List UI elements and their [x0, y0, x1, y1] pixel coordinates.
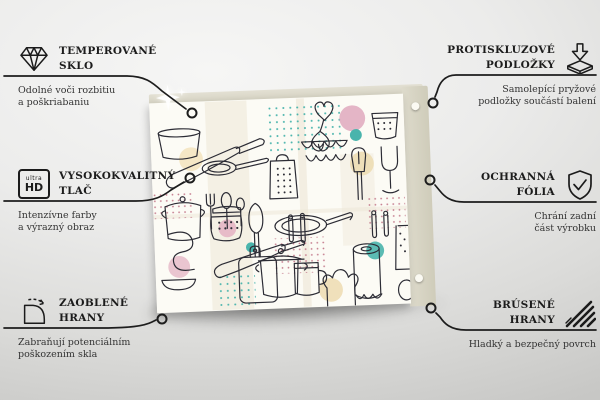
feature-hq-print: ultraHD VYSOKOKVALITNÝ TLAČ Intenzívne f… — [18, 167, 168, 234]
feature-head: PROTISKLUZOVÉ PODLOŽKY — [424, 41, 596, 75]
feature-head: ZAOBLENÉ HRANY — [18, 294, 168, 328]
feature-title: OCHRANNÁ FÓLIA — [481, 170, 555, 200]
feature-description: Zabraňují potenciálním poškozením skla — [18, 337, 168, 361]
product-infographic: TEMPEROVANÉ SKLO Odolné voči rozbitiu a … — [0, 0, 600, 400]
feature-description: Intenzívne farby a výrazný obraz — [18, 210, 168, 234]
feature-ground-edges: BRÚSENÉ HRANY Hladký a bezpečný povrch — [424, 296, 596, 351]
feature-title: VYSOKOKVALITNÝ TLAČ — [59, 169, 175, 199]
anti-slip-pad-icon — [564, 42, 596, 74]
feature-head: BRÚSENÉ HRANY — [424, 296, 596, 330]
feature-anti-slip-pads: PROTISKLUZOVÉ PODLOŽKY Samolepící pryžov… — [424, 41, 596, 108]
shield-check-icon — [564, 169, 596, 201]
feature-title: BRÚSENÉ HRANY — [493, 298, 555, 328]
ultra-hd-icon: ultraHD — [18, 168, 50, 200]
diamond-icon — [18, 43, 50, 75]
feature-protective-foil: OCHRANNÁ FÓLIA Chrání zadní část výrobku — [424, 168, 596, 235]
feature-head: TEMPEROVANÉ SKLO — [18, 42, 168, 76]
feature-description: Hladký a bezpečný povrch — [424, 339, 596, 351]
feature-description: Chrání zadní část výrobku — [424, 211, 596, 235]
feature-head: OCHRANNÁ FÓLIA — [424, 168, 596, 202]
feature-description: Odolné voči rozbitiu a poškriabaniu — [18, 85, 168, 109]
anti-slip-pad-bottom — [415, 274, 423, 282]
ground-edge-icon — [564, 297, 596, 329]
feature-tempered-glass: TEMPEROVANÉ SKLO Odolné voči rozbitiu a … — [18, 42, 168, 109]
feature-title: ZAOBLENÉ HRANY — [59, 296, 128, 326]
glass-panel — [146, 81, 439, 324]
panel-print-face — [149, 94, 411, 314]
rounded-corner-icon — [18, 295, 50, 327]
feature-rounded-edges: ZAOBLENÉ HRANY Zabraňují potenciálním po… — [18, 294, 168, 361]
feature-title: TEMPEROVANÉ SKLO — [59, 44, 156, 74]
feature-description: Samolepící pryžové podložky součástí bal… — [424, 84, 596, 108]
feature-head: ultraHD VYSOKOKVALITNÝ TLAČ — [18, 167, 168, 201]
anti-slip-pad-top — [411, 102, 419, 110]
kitchen-doodle-pattern — [149, 94, 411, 314]
feature-title: PROTISKLUZOVÉ PODLOŽKY — [447, 43, 555, 73]
